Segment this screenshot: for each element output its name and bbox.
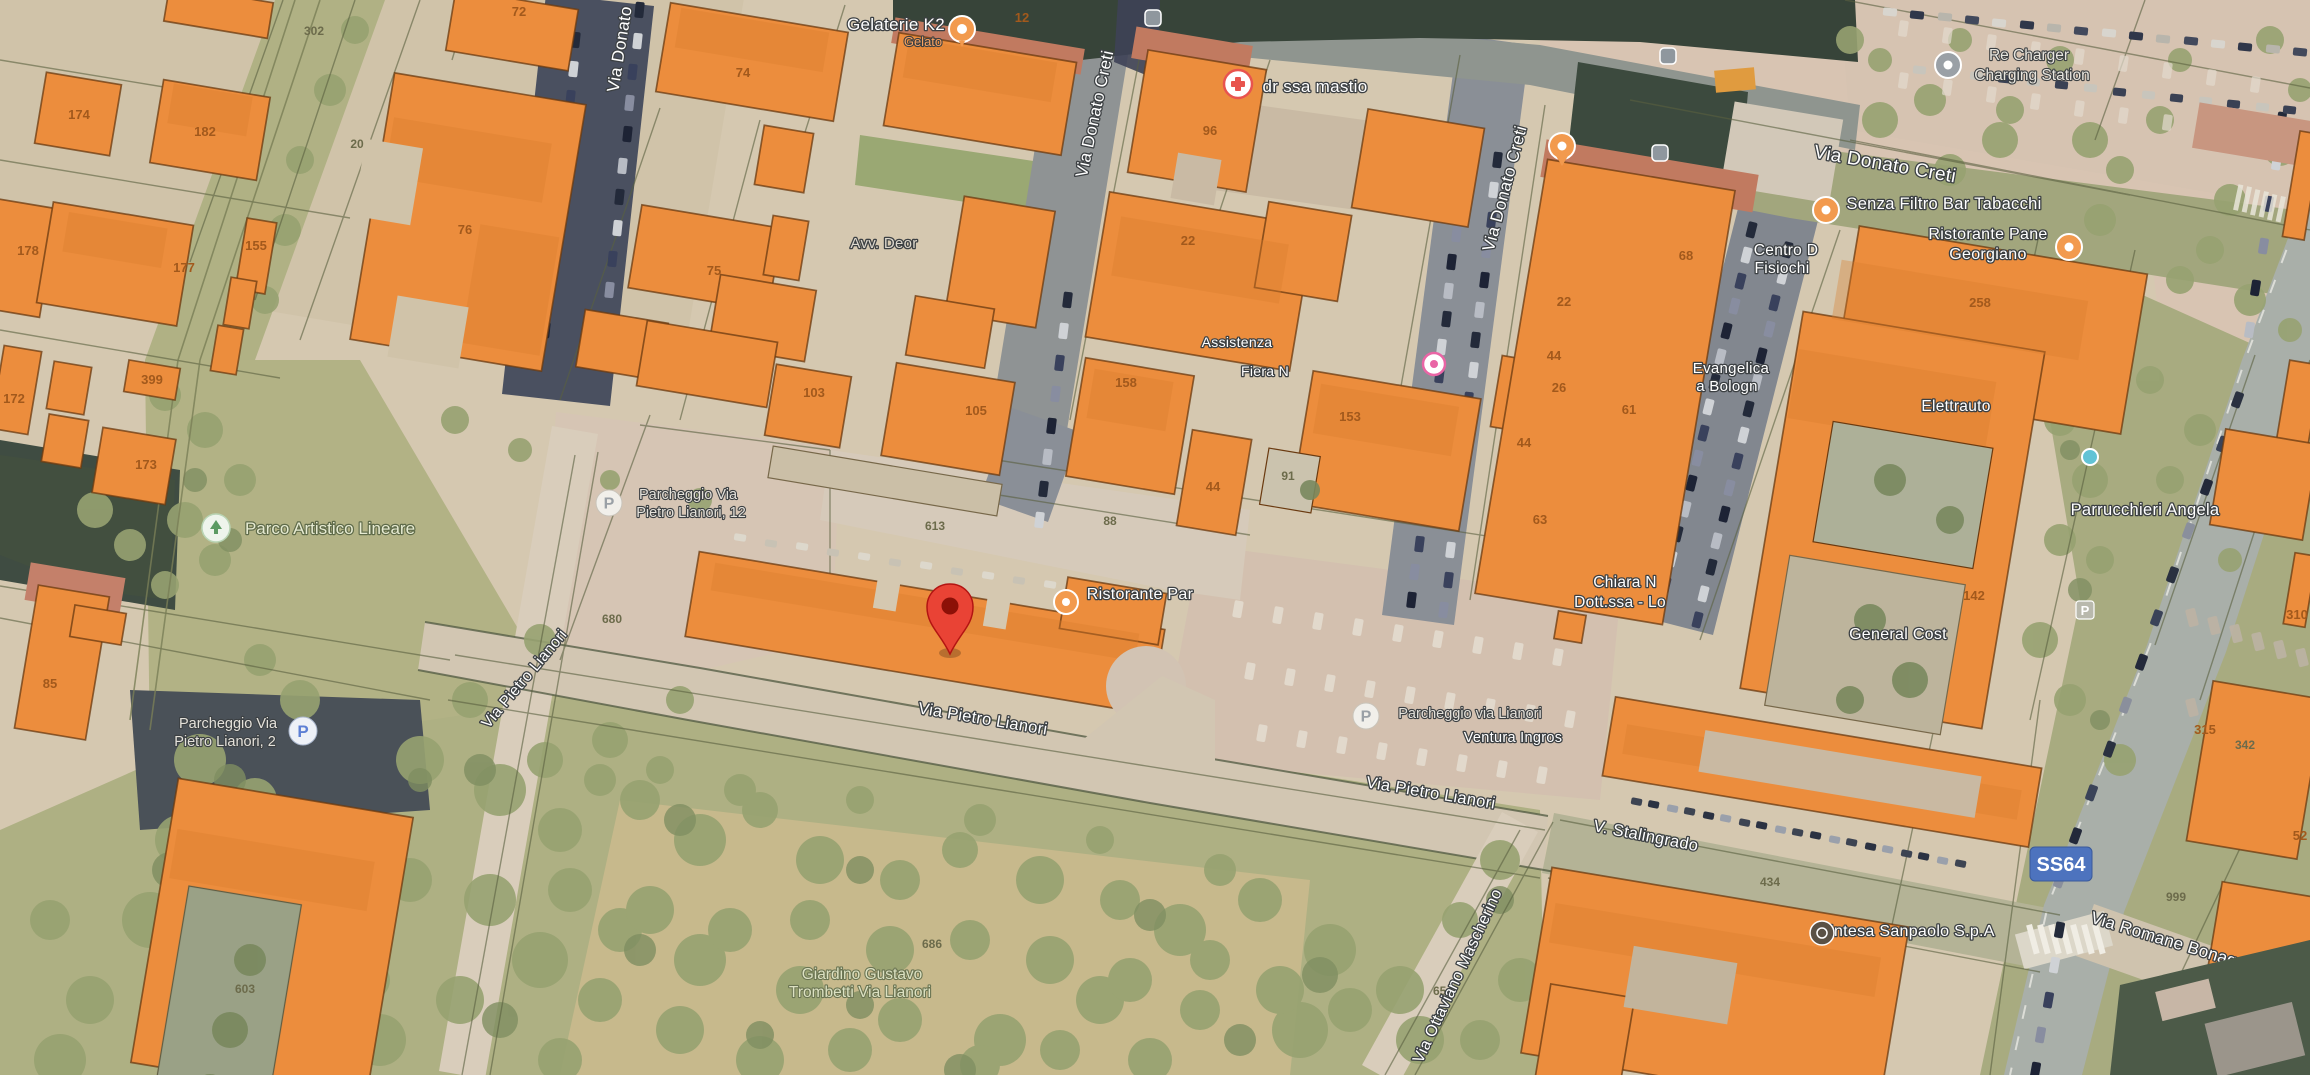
svg-text:96: 96 [1203,123,1217,138]
svg-text:Centro D: Centro D [1754,242,1818,259]
svg-text:302: 302 [304,24,324,38]
svg-text:315: 315 [2194,722,2216,737]
svg-text:153: 153 [1339,409,1361,424]
svg-text:44: 44 [1517,435,1532,450]
svg-text:680: 680 [602,612,622,626]
svg-text:44: 44 [1206,479,1221,494]
svg-text:310: 310 [2286,607,2308,622]
svg-text:Gelato: Gelato [904,34,942,49]
svg-text:Pietro Lianori, 12: Pietro Lianori, 12 [636,505,746,521]
svg-text:174: 174 [68,107,90,122]
svg-text:Parcheggio Via: Parcheggio Via [179,716,278,732]
svg-text:44: 44 [1547,348,1562,363]
svg-text:Parco Artistico Lineare: Parco Artistico Lineare [245,519,415,538]
svg-text:603: 603 [235,982,255,996]
svg-text:Ventura Ingros: Ventura Ingros [1464,730,1563,746]
svg-text:Avv. Deor: Avv. Deor [850,235,917,252]
svg-text:Re Charger: Re Charger [1989,47,2069,64]
svg-text:63: 63 [1533,512,1547,527]
svg-text:Georgiano: Georgiano [1949,246,2026,263]
svg-text:61: 61 [1622,402,1636,417]
svg-text:434: 434 [1760,875,1780,889]
svg-text:105: 105 [965,403,987,418]
svg-text:Giardino Gustavo: Giardino Gustavo [802,966,923,983]
svg-text:Pietro Lianori, 2: Pietro Lianori, 2 [174,734,276,750]
svg-text:74: 74 [736,65,751,80]
svg-text:173: 173 [135,457,157,472]
svg-text:22: 22 [1181,233,1195,248]
svg-text:172: 172 [3,391,25,406]
svg-text:Fisiochi: Fisiochi [1755,260,1810,277]
svg-text:Gelaterie K2: Gelaterie K2 [847,15,945,34]
svg-text:258: 258 [1969,295,1991,310]
svg-text:68: 68 [1679,248,1693,263]
svg-text:91: 91 [1281,469,1295,483]
svg-text:103: 103 [803,385,825,400]
svg-text:Intesa Sanpaolo S.p.A: Intesa Sanpaolo S.p.A [1829,923,1995,940]
svg-text:Trombetti Via Lianori: Trombetti Via Lianori [789,984,931,1001]
svg-text:177: 177 [173,260,195,275]
svg-text:22: 22 [1557,294,1571,309]
svg-text:686: 686 [922,937,942,951]
svg-text:142: 142 [1963,588,1985,603]
svg-text:155: 155 [245,238,267,253]
svg-text:dr ssa mastio: dr ssa mastio [1263,77,1368,96]
svg-text:Parcheggio via Lianori: Parcheggio via Lianori [1398,706,1541,722]
svg-text:342: 342 [2235,738,2255,752]
svg-text:Charging Station: Charging Station [1974,67,2089,84]
svg-text:26: 26 [1552,380,1566,395]
svg-text:182: 182 [194,124,216,139]
svg-text:Dott.ssa - Lo: Dott.ssa - Lo [1574,594,1666,611]
svg-text:613: 613 [925,519,945,533]
svg-text:Elettrauto: Elettrauto [1921,398,1990,415]
svg-text:88: 88 [1103,514,1117,528]
svg-text:Fiera N: Fiera N [1241,363,1289,379]
svg-text:72: 72 [512,4,526,19]
svg-text:999: 999 [2166,890,2186,904]
svg-text:P: P [297,722,308,741]
svg-text:P: P [1361,709,1372,726]
svg-text:Parcheggio Via: Parcheggio Via [639,487,738,503]
svg-text:76: 76 [458,222,472,237]
svg-text:Senza Filtro Bar Tabacchi: Senza Filtro Bar Tabacchi [1846,195,2041,213]
svg-text:a Bologn: a Bologn [1696,378,1758,395]
svg-text:Parrucchieri Angela: Parrucchieri Angela [2071,501,2220,519]
svg-text:P: P [604,496,615,513]
svg-text:Ristorante Par: Ristorante Par [1087,586,1194,603]
svg-text:85: 85 [43,676,57,691]
svg-text:Chiara N: Chiara N [1593,574,1657,591]
svg-text:12: 12 [1015,10,1029,25]
svg-text:178: 178 [17,243,39,258]
svg-text:20: 20 [350,137,364,151]
svg-text:Ristorante Pane: Ristorante Pane [1928,226,2047,243]
svg-text:75: 75 [707,263,721,278]
svg-text:Assistenza: Assistenza [1202,334,1273,350]
svg-text:52: 52 [2293,828,2307,843]
svg-text:General Cost: General Cost [1849,626,1947,643]
svg-text:P: P [2081,603,2090,618]
svg-text:SS64: SS64 [2037,854,2087,876]
svg-text:158: 158 [1115,375,1137,390]
svg-text:399: 399 [141,372,163,387]
svg-text:Evangelica: Evangelica [1693,360,1770,377]
